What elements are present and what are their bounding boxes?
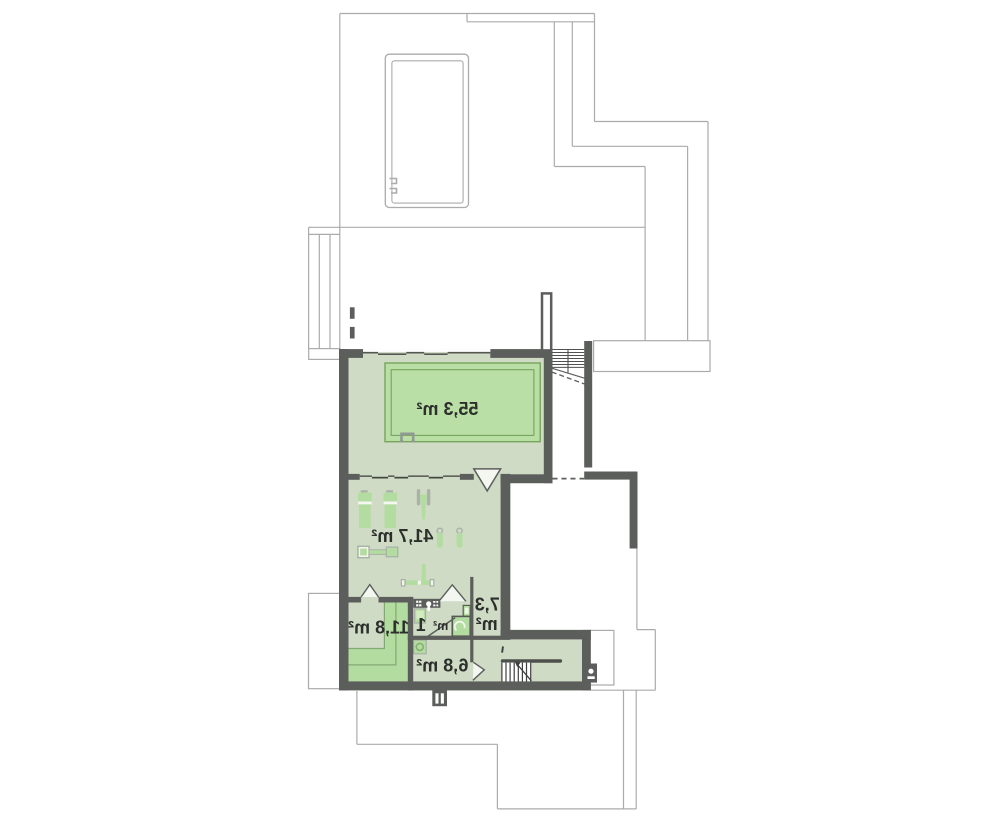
svg-text:1: 1 [416, 615, 426, 635]
svg-text:m²: m² [433, 619, 448, 633]
svg-text:6,8 m²: 6,8 m² [416, 656, 468, 676]
svg-text:7,3: 7,3 [475, 595, 500, 615]
svg-text:55,3 m²: 55,3 m² [416, 399, 478, 419]
svg-text:41,7 m²: 41,7 m² [371, 526, 433, 546]
svg-text:11,8 m²: 11,8 m² [348, 618, 409, 638]
svg-text:m²: m² [476, 614, 498, 634]
